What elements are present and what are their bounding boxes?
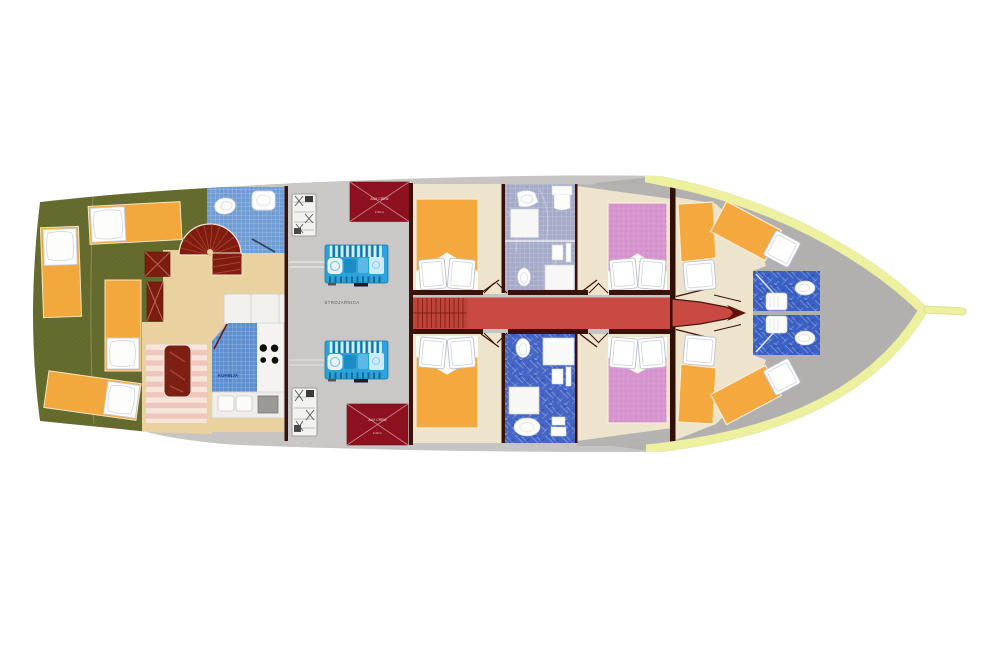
svg-text:AUX CREW: AUX CREW bbox=[368, 418, 387, 422]
svg-text:2.20 m: 2.20 m bbox=[373, 431, 383, 435]
svg-text:STROJARNICA: STROJARNICA bbox=[324, 300, 359, 305]
svg-text:KUHINJA: KUHINJA bbox=[218, 373, 239, 378]
svg-text:2.20 m: 2.20 m bbox=[375, 210, 385, 214]
svg-text:AUX CREW: AUX CREW bbox=[370, 197, 389, 201]
